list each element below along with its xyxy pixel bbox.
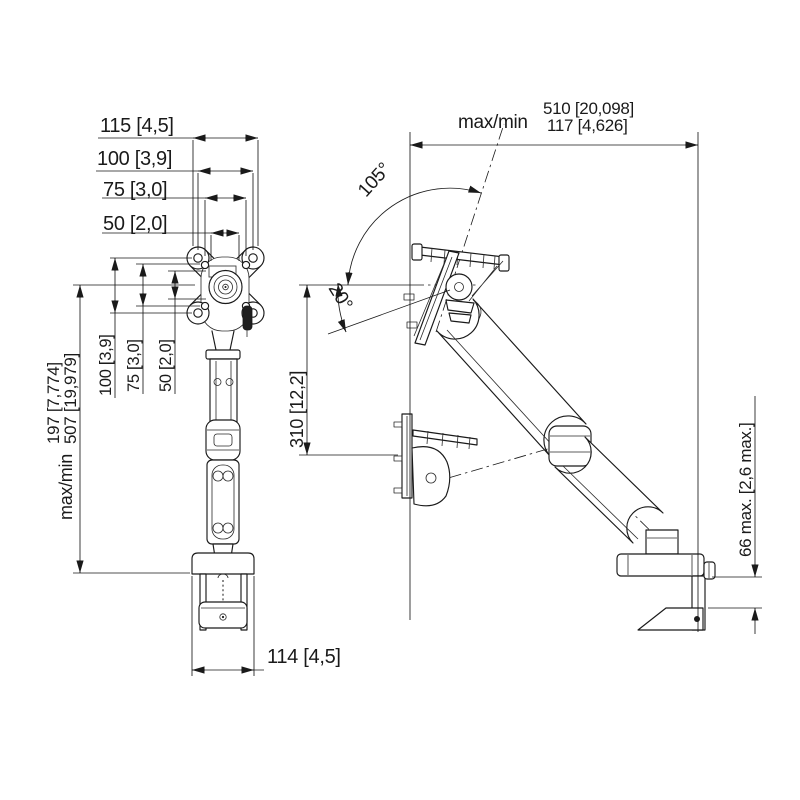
dim-height-75: 75 [3,0] <box>125 339 143 392</box>
neck-ring-1 <box>446 300 474 313</box>
head-bracket-min <box>412 447 450 506</box>
front-width-extension-lines <box>193 140 258 261</box>
clamp-foot-side <box>638 608 703 630</box>
dim-width-50: 50 [2,0] <box>103 213 167 235</box>
quick-release-tab <box>243 306 252 330</box>
vesa-hole <box>201 302 208 309</box>
clamp-top-plate <box>192 553 254 574</box>
dim-height-50: 50 [2,0] <box>157 339 175 392</box>
vesa-hole <box>201 261 208 268</box>
tilt-bracket-links <box>469 261 503 301</box>
dim-height-100: 100 [3,9] <box>97 334 115 396</box>
mount-post <box>646 530 678 554</box>
tilt-up-angle-dimension <box>348 188 481 285</box>
lower-arm-segment <box>207 460 239 544</box>
foot-bolt <box>694 616 700 622</box>
head-min-position <box>394 414 477 506</box>
height-range-min: 197 [7,774] <box>44 362 63 444</box>
vertical-travel-dimension <box>299 285 412 455</box>
reach-range-prefix: max/min <box>458 112 528 133</box>
neck-collar <box>206 350 240 359</box>
vesa-hole <box>242 261 249 268</box>
tilt-up-angle-label: 105° <box>354 159 395 201</box>
elbow-joint <box>549 426 591 466</box>
height-range-dimension <box>73 285 195 573</box>
screw-dome <box>218 574 228 578</box>
vesa-hole <box>249 254 257 262</box>
tilt-pivot <box>446 274 472 300</box>
drawing-canvas: 115 [4,5] 100 [3,9] 75 [3,0] 50 [2,0] 10… <box>0 0 800 800</box>
desk-clamp-side <box>617 530 715 630</box>
vesa-hole <box>194 254 202 262</box>
dimension-annotations: 115 [4,5] 100 [3,9] 75 [3,0] 50 [2,0] 10… <box>44 99 762 676</box>
arm-mid-joint <box>206 420 240 460</box>
base-width-label: 114 [4,5] <box>267 646 341 668</box>
neck-ring-2 <box>449 313 471 323</box>
reach-range-min: 117 [4,626] <box>547 116 628 135</box>
front-view <box>183 243 268 630</box>
clamp-top-plate-side <box>617 554 704 576</box>
height-range-label: max/min 507 [19,979] 197 [7,774] <box>44 353 80 520</box>
rail-clip-right <box>499 255 509 271</box>
desk-thickness-label: 66 max. [2,6 max.] <box>736 423 755 557</box>
dim-width-115: 115 [4,5] <box>100 115 174 137</box>
height-range-prefix: max/min <box>56 454 76 520</box>
monitor-arm-technical-drawing: 115 [4,5] 100 [3,9] 75 [3,0] 50 [2,0] 10… <box>0 0 800 800</box>
vesa-plate <box>183 243 268 337</box>
clamp-foot <box>199 602 247 628</box>
clamp-knob <box>704 562 715 579</box>
side-view <box>394 124 715 630</box>
upper-arm-column <box>210 359 237 422</box>
monitor-rail-max <box>420 247 504 265</box>
vertical-travel-label: 310 [12,2] <box>287 371 307 448</box>
monitor-rail-min <box>413 430 477 445</box>
head-neck <box>212 331 234 350</box>
desk-clamp-front <box>192 553 254 630</box>
dim-width-100: 100 [3,9] <box>97 148 172 170</box>
height-range-max: 507 [19,979] <box>61 353 80 444</box>
rail-clip-left <box>412 244 422 260</box>
dim-width-75: 75 [3,0] <box>103 179 167 201</box>
vesa-hole <box>194 309 202 317</box>
